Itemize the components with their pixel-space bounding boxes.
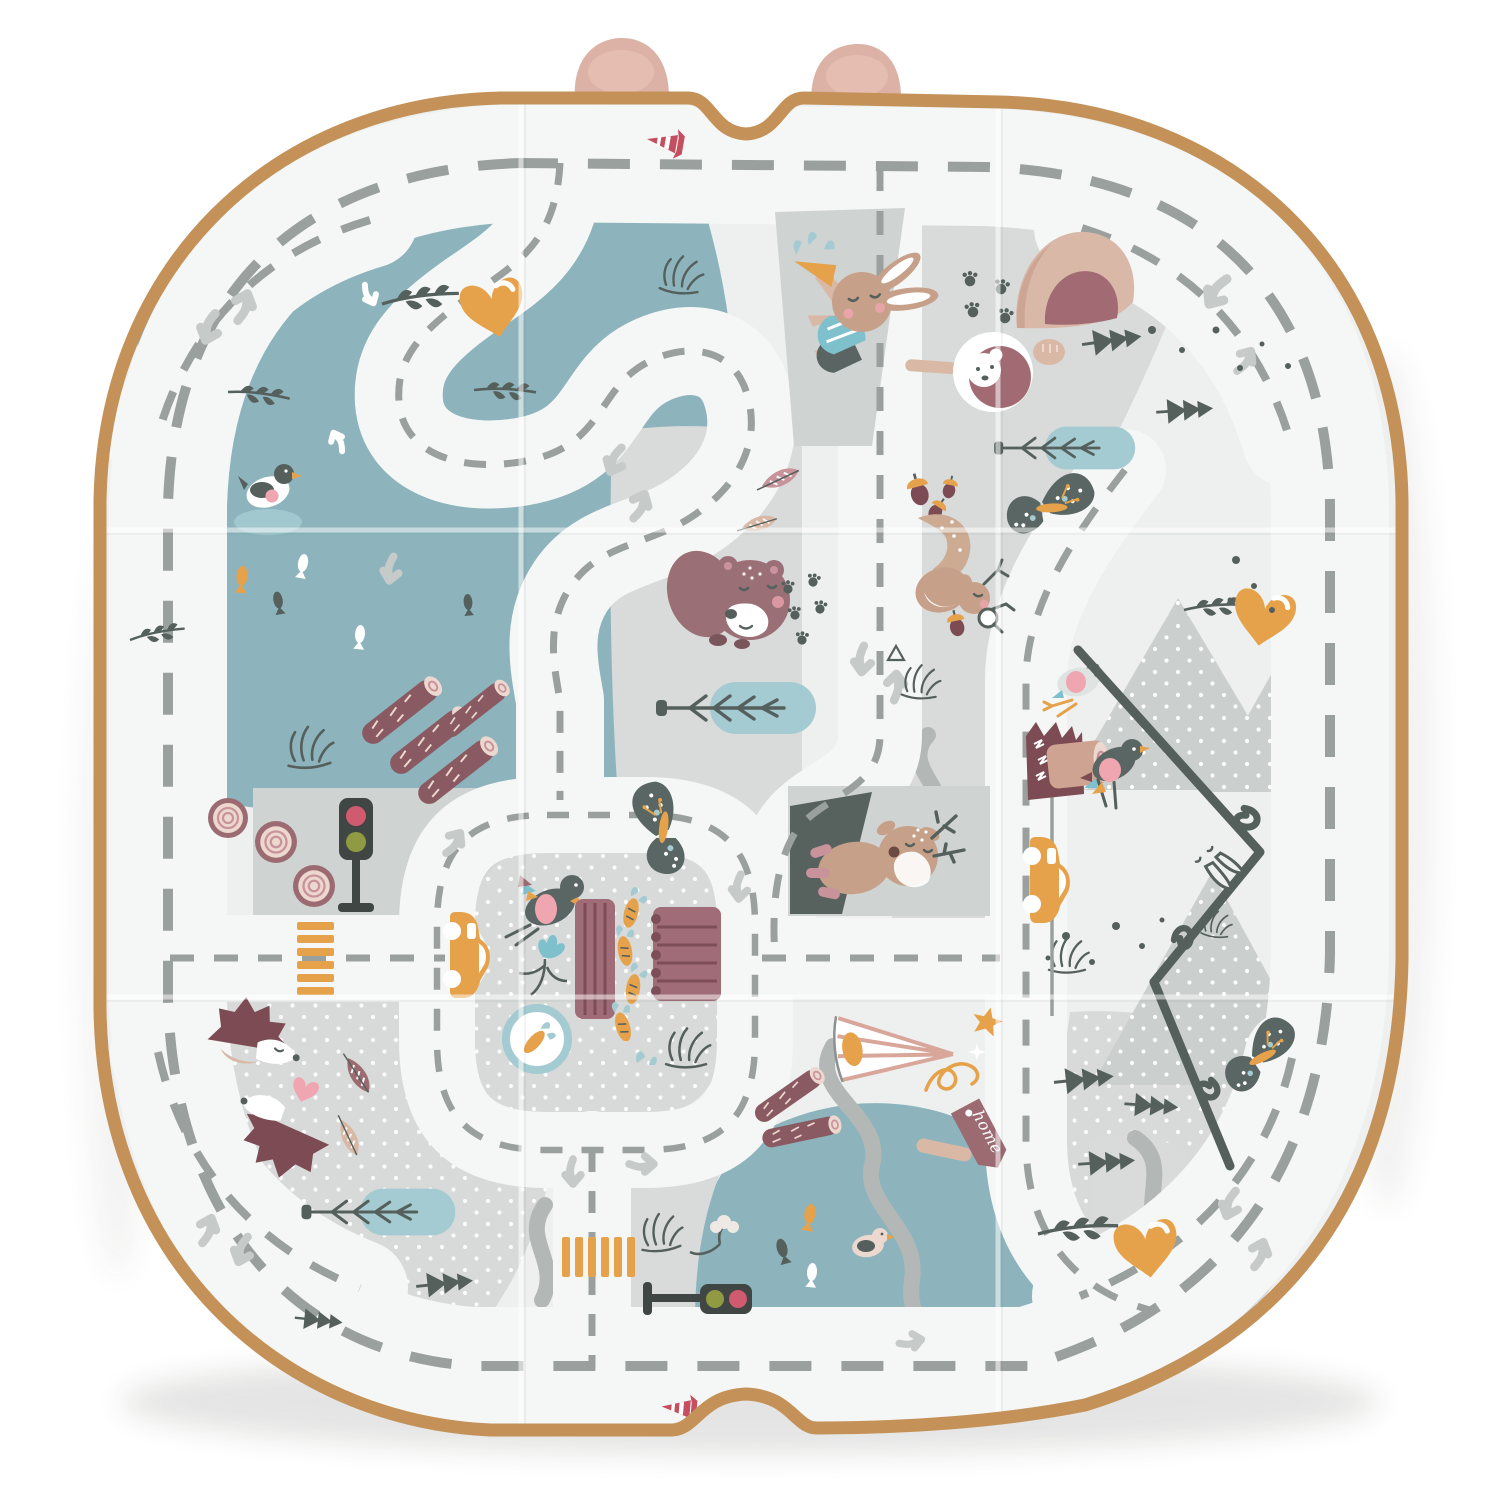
garden-bed-2 (651, 907, 721, 1001)
product-photo: home (0, 0, 1500, 1500)
play-mat-photo: home (0, 0, 1500, 1500)
garden-pond-carrot (504, 1006, 570, 1072)
